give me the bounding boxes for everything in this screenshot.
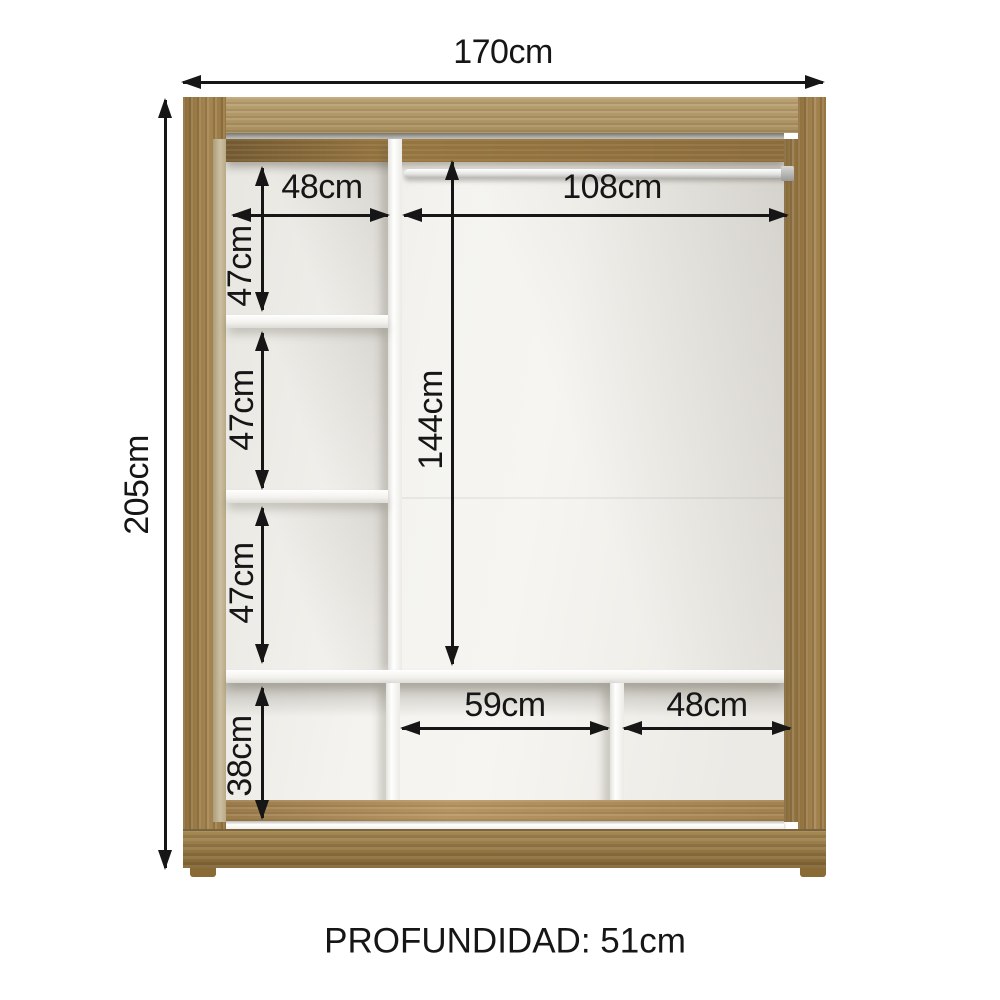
foot-left xyxy=(190,868,216,877)
shelf-2 xyxy=(226,490,388,503)
shelf-3 xyxy=(226,670,784,683)
dim-left-cell-3-label: 47cm xyxy=(225,542,259,623)
dim-bottom-middle-width-arrow xyxy=(402,727,608,730)
dim-bottom-left-height-arrow xyxy=(261,688,264,818)
interior-floor xyxy=(226,800,784,822)
base-rail xyxy=(226,821,784,829)
right-section-shade xyxy=(402,162,784,670)
dim-left-cell-3-arrow xyxy=(261,508,264,662)
dim-left-cell-1-arrow xyxy=(261,168,264,310)
foot-right xyxy=(800,868,826,877)
divider-main xyxy=(388,139,402,670)
dim-total-width-arrow xyxy=(183,81,823,84)
dim-total-height-label: 205cm xyxy=(120,435,154,535)
dim-bottom-right-width-label: 48cm xyxy=(666,688,747,722)
frame-top xyxy=(183,97,826,133)
dim-total-width-label: 170cm xyxy=(453,35,553,69)
dim-rod-width-arrow xyxy=(404,214,787,217)
dim-left-cell-2-label: 47cm xyxy=(225,369,259,450)
dim-bottom-middle-width-label: 59cm xyxy=(464,688,545,722)
dim-bottom-right-width-arrow xyxy=(624,727,790,730)
top-panel-underside xyxy=(226,139,784,162)
dim-bottom-left-height-label: 38cm xyxy=(223,715,257,796)
frame-base xyxy=(183,829,826,868)
depth-caption: PROFUNDIDAD: 51cm xyxy=(324,924,686,959)
dim-left-cell-1-label: 47cm xyxy=(223,225,257,306)
right-bevel xyxy=(784,139,798,822)
dim-left-cell-2-arrow xyxy=(261,333,264,488)
dim-right-height-arrow xyxy=(451,162,454,664)
rod-bracket xyxy=(781,166,794,181)
frame-right xyxy=(798,97,826,868)
shelf-1 xyxy=(226,315,388,328)
diagram-canvas: 170cm 205cm 48cm 108cm 47cm 47cm 47cm 14… xyxy=(0,0,1000,1000)
dim-total-height-arrow xyxy=(164,100,167,868)
dim-upper-left-width-arrow xyxy=(233,214,388,217)
dim-rod-width-label: 108cm xyxy=(562,170,662,204)
dim-right-height-label: 144cm xyxy=(414,370,448,470)
dim-upper-left-width-label: 48cm xyxy=(281,170,362,204)
